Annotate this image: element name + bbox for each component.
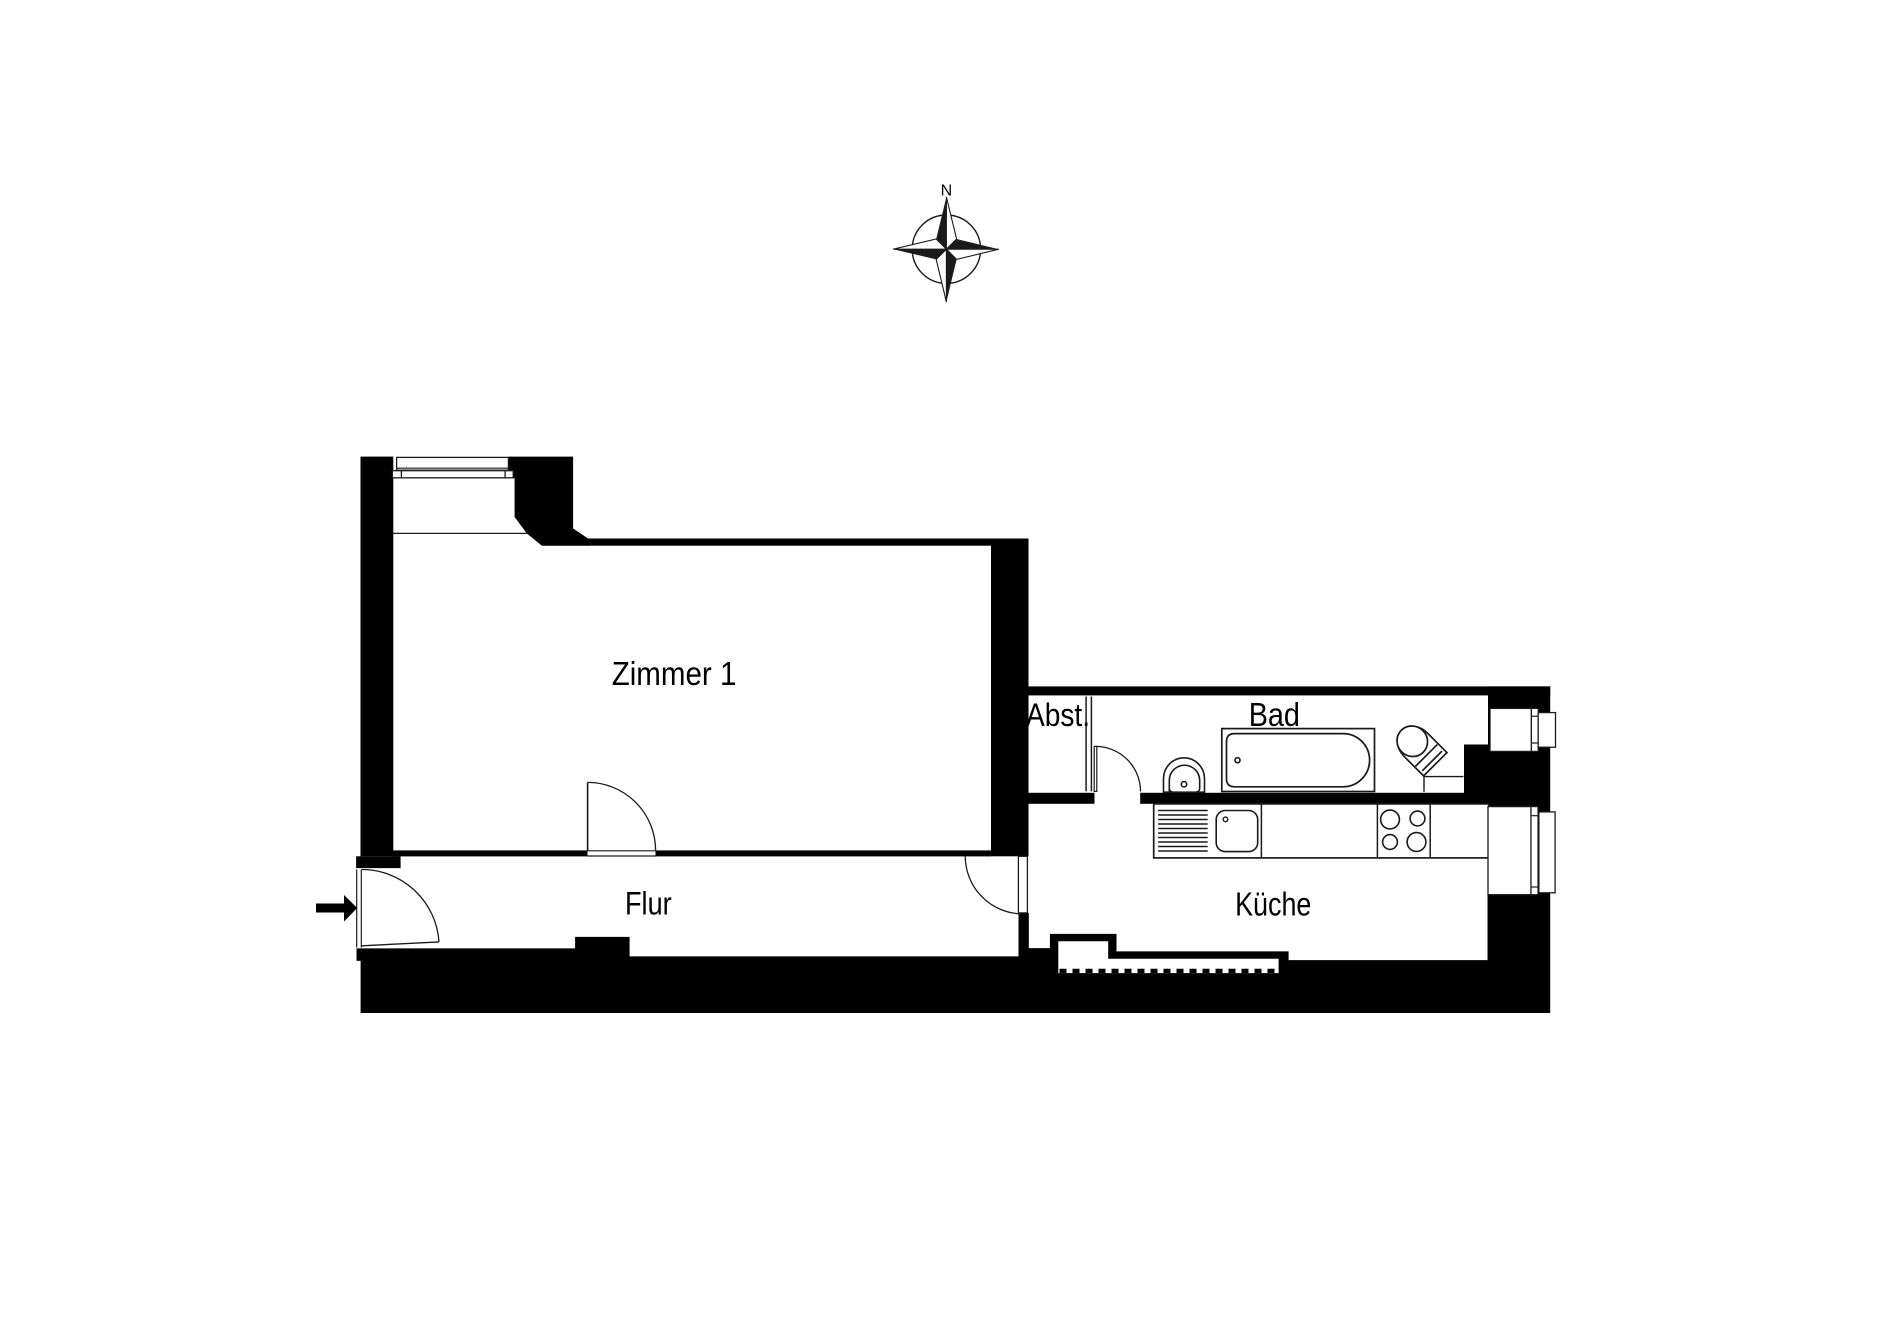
svg-text:Zimmer 1: Zimmer 1 [612,656,737,693]
svg-text:Küche: Küche [1235,887,1311,924]
svg-text:Abst.: Abst. [1026,697,1090,733]
svg-text:Flur: Flur [625,885,672,921]
svg-text:N: N [941,182,953,199]
